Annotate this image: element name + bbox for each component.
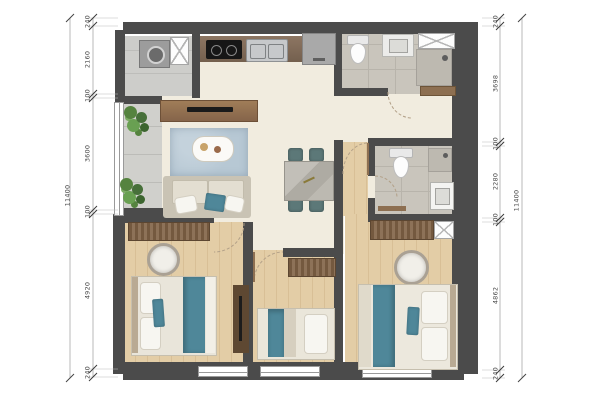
sofa-pillow <box>224 194 246 214</box>
dim-left-seg-3: 3600 <box>84 134 93 174</box>
bath1-bench <box>420 86 456 96</box>
washing-machine <box>139 40 170 68</box>
kitchen-sink <box>246 39 288 62</box>
stool-bedroom1 <box>147 243 180 276</box>
bath2-bench <box>378 206 406 211</box>
dim-right-seg-5: 4862 <box>492 276 501 316</box>
dim-left-seg-5: 4920 <box>84 271 93 311</box>
dining-chair <box>309 148 324 162</box>
bedroom2-window <box>260 366 320 377</box>
dim-right-seg-0: 240 <box>492 2 501 42</box>
sink-basin-icon <box>268 44 284 59</box>
balcony-plant-top <box>124 106 137 119</box>
shower-head-icon <box>442 55 448 61</box>
wardrobe-bedroom2 <box>288 258 336 277</box>
sink-basin-icon <box>250 44 266 59</box>
bed-3-blanket <box>373 285 395 367</box>
basin-icon <box>435 188 450 205</box>
dim-left-seg-0: 240 <box>84 2 93 42</box>
bed-1-accent-pillow <box>152 299 165 328</box>
bed-3-pillow <box>421 327 448 361</box>
wardrobe-bedroom1 <box>128 222 210 241</box>
dim-right-seg-1: 3698 <box>492 64 501 104</box>
bathroom1-bottom-wall <box>334 88 388 96</box>
left-wall-bottom <box>113 214 125 374</box>
dim-left-seg-1: 2160 <box>84 40 93 80</box>
kitchen-shaft <box>170 37 189 65</box>
dim-right-seg-4: 100 <box>492 200 501 240</box>
dim-left-seg-6: 240 <box>84 353 93 393</box>
stool-bedroom3 <box>394 250 429 285</box>
burner-icon <box>226 45 237 56</box>
bed-2-blanket <box>268 309 284 357</box>
bed-2-pillow <box>304 314 328 354</box>
bedroom1-window <box>198 366 248 377</box>
coffee-table <box>192 136 234 162</box>
utility-divider-wall <box>192 34 200 98</box>
bath1-counter <box>418 33 455 49</box>
tv-console <box>160 100 258 122</box>
hallway-wood-floor <box>343 142 368 216</box>
bedroom2-top-wall <box>283 248 335 257</box>
sofa <box>163 176 251 218</box>
floor-plan-canvas: 240 2160 100 3600 100 4920 240 11400 240… <box>0 0 600 400</box>
bed-1-blanket <box>183 277 205 353</box>
dim-left-seg-2: 100 <box>84 76 93 116</box>
cooktop <box>206 40 242 59</box>
dim-right-seg-6: 240 <box>492 354 501 394</box>
balcony-wall-top <box>124 96 162 104</box>
decor-icon <box>214 146 221 153</box>
bathroom2-left-wall-lower <box>368 198 375 214</box>
shower-head-icon <box>443 153 448 158</box>
basin-icon <box>389 39 408 53</box>
dim-right-total: 11400 <box>513 181 522 221</box>
dining-table <box>284 161 334 201</box>
tv-icon <box>187 107 233 112</box>
bed-3-accent-pillow <box>406 307 419 336</box>
dim-left-total: 11400 <box>64 176 73 216</box>
bed-1-headboard <box>132 277 138 353</box>
fridge-handle-icon <box>313 58 325 61</box>
bathroom2-top-wall <box>368 138 458 146</box>
dim-right-seg-3: 2280 <box>492 162 501 202</box>
balcony-wall-bottom <box>124 208 164 216</box>
vanity-sink-1 <box>382 34 414 57</box>
hall-dining-wall <box>334 140 343 362</box>
burner-icon <box>211 45 222 56</box>
washer-drum-icon <box>147 46 165 64</box>
left-wall-top <box>115 30 125 102</box>
bed-3-sheet-fold <box>359 285 371 367</box>
dim-right-seg-2: 100 <box>492 124 501 164</box>
wardrobe-bedroom3 <box>370 220 434 240</box>
sink-2 <box>430 182 454 210</box>
dining-chair <box>288 148 303 162</box>
balcony-glass <box>114 102 124 216</box>
shower-2 <box>428 148 452 172</box>
decor-icon <box>200 143 208 151</box>
sofa-pillow-teal <box>204 193 226 213</box>
bed-1 <box>131 276 217 356</box>
bedroom1-desk <box>233 285 249 353</box>
dim-left-seg-4: 100 <box>84 192 93 232</box>
bed-3 <box>358 284 458 370</box>
decor-icon <box>303 177 315 184</box>
bed-3-headboard <box>450 285 456 367</box>
bathroom2-left-wall-upper <box>368 146 375 176</box>
bed-2-sheet-fold <box>284 309 296 357</box>
shaft-bedroom3 <box>434 221 454 239</box>
shower-1 <box>416 49 452 86</box>
balcony-plant-bottom <box>120 178 133 191</box>
fridge <box>302 33 336 65</box>
desk-line-icon <box>239 296 242 341</box>
bed-2 <box>257 308 335 360</box>
bed-1-sheet-fold <box>206 277 215 353</box>
bed-3-pillow <box>421 291 448 324</box>
sofa-pillow <box>174 194 199 215</box>
